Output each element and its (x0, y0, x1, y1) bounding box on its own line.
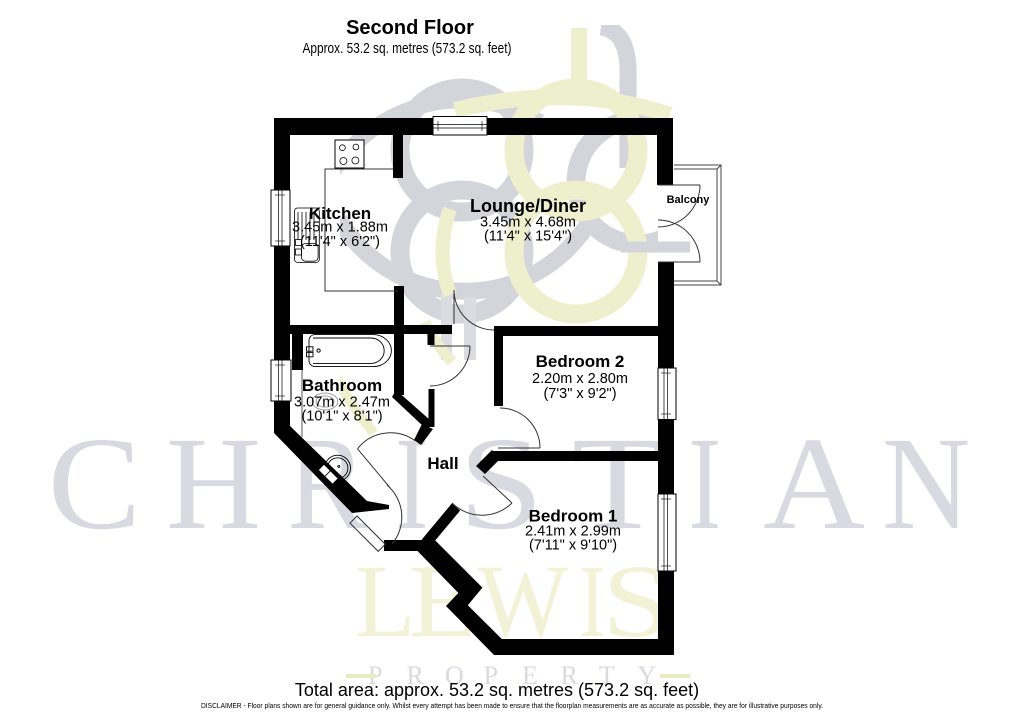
svg-text:2.20m x 2.80m: 2.20m x 2.80m (532, 371, 628, 387)
svg-text:N: N (882, 409, 970, 557)
svg-text:I: I (688, 409, 721, 557)
svg-text:Balcony: Balcony (667, 194, 711, 206)
svg-text:H: H (166, 409, 261, 557)
svg-text:Total area: approx. 53.2 sq. m: Total area: approx. 53.2 sq. metres (573… (295, 680, 699, 700)
svg-text:Bedroom 2: Bedroom 2 (536, 352, 625, 371)
svg-text:(11'4" x 6'2"): (11'4" x 6'2") (300, 234, 380, 250)
svg-text:(7'11" x 9'10"): (7'11" x 9'10") (529, 538, 617, 554)
svg-text:Hall: Hall (427, 454, 458, 473)
svg-text:(10'1" x 8'1"): (10'1" x 8'1") (301, 409, 382, 425)
svg-text:C: C (48, 409, 141, 557)
svg-text:(7'3" x 9'2"): (7'3" x 9'2") (543, 386, 616, 402)
svg-text:(11'4" x 15'4"): (11'4" x 15'4") (484, 229, 572, 245)
svg-text:A: A (763, 409, 865, 557)
svg-text:Approx. 53.2 sq. metres (573.2: Approx. 53.2 sq. metres (573.2 sq. feet) (303, 41, 512, 57)
svg-text:Bathroom: Bathroom (302, 376, 382, 395)
svg-text:L: L (355, 544, 415, 659)
svg-text:Second Floor: Second Floor (346, 17, 474, 39)
svg-text:DISCLAIMER - Floor plans show: DISCLAIMER - Floor plans shown are for g… (201, 701, 823, 710)
svg-text:Lounge/Diner: Lounge/Diner (470, 196, 586, 216)
